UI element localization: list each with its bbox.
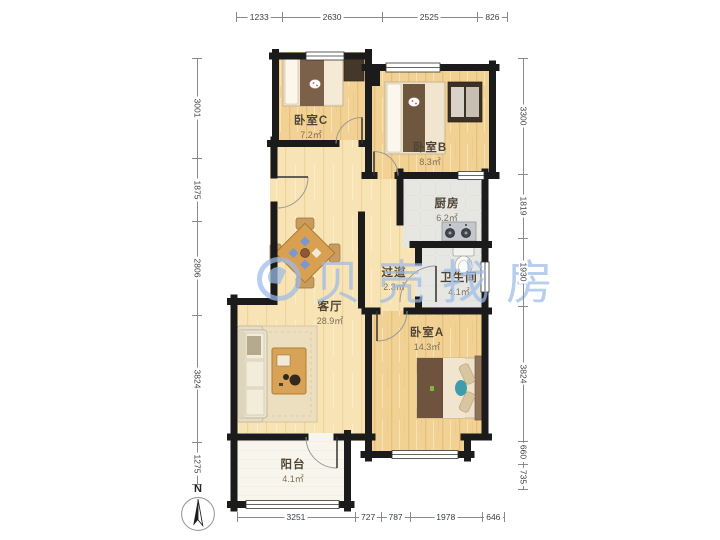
dimension-segment: 1930	[516, 238, 530, 306]
dimension-segment: 3251	[237, 510, 355, 524]
window-bedroom-b	[386, 63, 440, 72]
floor-plan	[0, 0, 720, 540]
dimension-ruler-bottom: 32517277871978646	[237, 510, 505, 524]
window-kitchen	[458, 172, 484, 180]
bed-icon-a	[417, 356, 483, 420]
dimension-segment: 660	[516, 441, 530, 464]
dimension-segment: 1275	[190, 442, 204, 485]
compass-north-label: N	[179, 483, 217, 495]
window-bathroom	[481, 262, 489, 292]
dimension-segment: 1875	[190, 158, 204, 221]
dimension-segment: 2630	[282, 10, 381, 24]
floorplan-page: 卧室C 7.2㎡ 卧室B 8.3㎡ 厨房 6.2㎡ 过道 2.3㎡ 卫生间 4.…	[0, 0, 720, 540]
window-balcony	[246, 501, 339, 509]
compass: N	[179, 483, 217, 537]
dimension-segment: 3001	[190, 58, 204, 158]
dimension-segment: 3300	[516, 58, 530, 174]
toilet-icon	[453, 247, 474, 276]
dimension-segment: 1819	[516, 174, 530, 238]
wardrobe-icon-c	[344, 56, 364, 81]
wardrobe-icon-b	[448, 82, 482, 122]
dimension-segment: 727	[355, 510, 381, 524]
sofa-icon	[237, 326, 267, 422]
dimension-ruler-top: 123326302525826	[236, 10, 508, 24]
stove-icon	[442, 222, 476, 241]
dimension-segment: 735	[516, 464, 530, 490]
dimension-ruler-left: 30011875280638241275	[190, 58, 204, 485]
dimension-segment: 3824	[190, 315, 204, 443]
dimension-ruler-right: 3300181919303824660735	[516, 58, 530, 490]
dimension-segment: 2806	[190, 221, 204, 315]
dimension-segment: 1233	[236, 10, 282, 24]
window-bedroom-a	[392, 451, 458, 459]
window-bedroom-c	[306, 52, 344, 60]
compass-needle-icon	[180, 496, 216, 532]
dimension-segment: 1978	[410, 510, 482, 524]
floor-balcony	[231, 433, 351, 508]
dimension-segment: 2525	[382, 10, 477, 24]
dimension-segment: 646	[482, 510, 505, 524]
coffee-table-icon	[272, 348, 306, 394]
dimension-segment: 3824	[516, 306, 530, 441]
dimension-segment: 826	[477, 10, 508, 24]
floor-bathroom	[415, 244, 488, 314]
dimension-segment: 787	[381, 510, 410, 524]
